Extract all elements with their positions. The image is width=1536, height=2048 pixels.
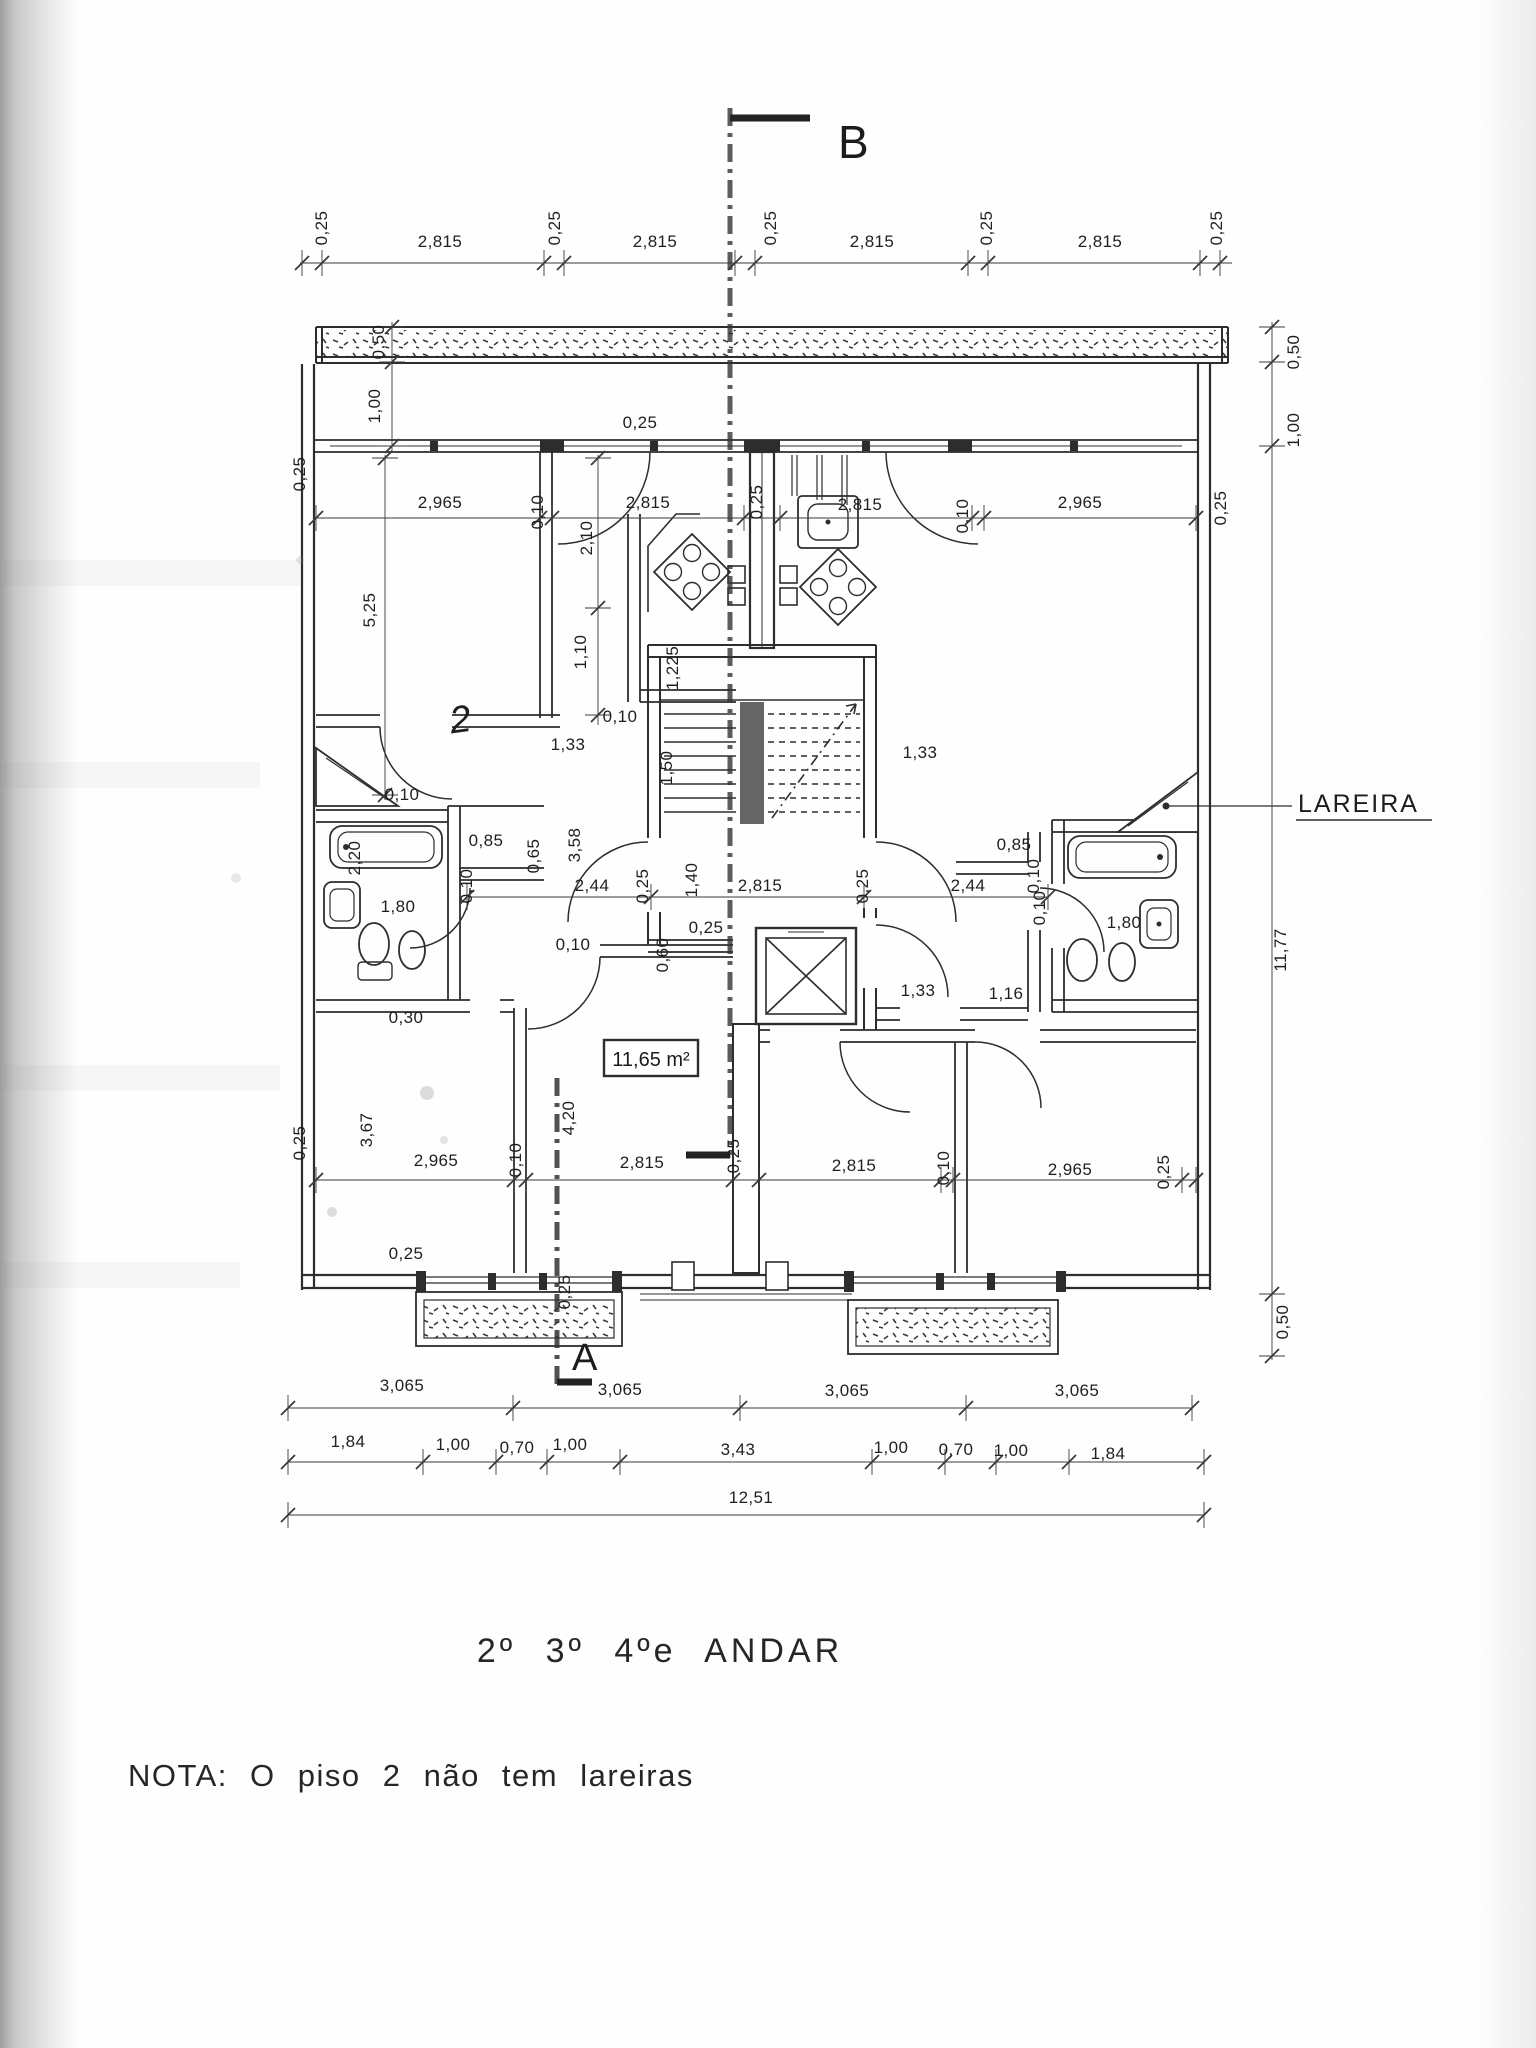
dimension-label: 1,33 <box>903 743 938 762</box>
terrace-band <box>316 327 1228 363</box>
dimension-label: 3,065 <box>825 1381 870 1400</box>
dimension-label: 0,65 <box>524 839 543 874</box>
stove-left <box>654 534 730 610</box>
dimension-label: 0,10 <box>556 935 591 954</box>
dimension-label: 3,065 <box>1055 1381 1100 1400</box>
dimension-label: 4,20 <box>559 1101 578 1136</box>
dimension-label: 0,25 <box>1211 491 1230 526</box>
toilet-right <box>1067 939 1097 981</box>
dimension-label: 0,10 <box>528 495 547 530</box>
toilet-left <box>359 923 389 965</box>
dimension-label: 0,10 <box>1030 891 1049 926</box>
dimension-label: 0,25 <box>853 869 872 904</box>
handwritten-mark: 2 <box>446 698 474 743</box>
dimension-label: 2,815 <box>738 876 783 895</box>
dimension-label: 2,815 <box>633 232 678 251</box>
dimension-label: 3,58 <box>565 828 584 863</box>
dimension-label: 2,44 <box>951 876 986 895</box>
dimension-label: 0,25 <box>555 1275 574 1310</box>
balcony-right <box>848 1300 1058 1354</box>
dimension-label: 0,25 <box>290 1126 309 1161</box>
dimension-label: 3,065 <box>380 1376 425 1395</box>
bidet-left <box>399 931 425 969</box>
dimension-label: 0,10 <box>603 707 638 726</box>
dimension-label: 12,51 <box>729 1488 774 1507</box>
dimension-label: 2,815 <box>620 1153 665 1172</box>
plan-linework <box>231 108 1432 1385</box>
dimension-label: 1,00 <box>874 1438 909 1457</box>
facade-window-wall <box>314 440 1198 452</box>
dimension-label: 1,84 <box>1091 1444 1126 1463</box>
dimension-label: 1,00 <box>1284 413 1303 448</box>
dimension-label: 1,84 <box>331 1432 366 1451</box>
dimension-label: 0,25 <box>977 211 996 246</box>
dimension-label: 0,10 <box>385 785 420 804</box>
dimension-label: 0,10 <box>457 869 476 904</box>
stair-well-rail <box>740 702 764 824</box>
dimension-label: 2,815 <box>832 1156 877 1175</box>
dimension-label: 1,80 <box>1107 913 1142 932</box>
kitchen-right <box>780 455 876 625</box>
dimension-label: 1,33 <box>551 735 586 754</box>
dimension-label: 0,25 <box>389 1244 424 1263</box>
drawing-note: NOTA: O piso 2 não tem lareiras <box>128 1758 694 1793</box>
elevator-shaft <box>756 928 856 1024</box>
dimension-label: 0,25 <box>747 485 766 520</box>
drawing-title: 2º 3º 4ºe ANDAR <box>477 1632 843 1670</box>
dimension-label: 1,225 <box>663 646 682 691</box>
dimension-label: 0,70 <box>500 1438 535 1457</box>
scanned-floor-plan-page: 0,252,8150,252,8150,252,8150,252,8150,25… <box>0 0 1536 2048</box>
dimension-label: 0,25 <box>761 211 780 246</box>
section-marker-b: B <box>838 116 869 168</box>
dimension-label: 1,33 <box>901 981 936 1000</box>
dimension-label: 1,00 <box>553 1435 588 1454</box>
dimension-label: 2,965 <box>418 493 463 512</box>
dimension-label: 0,85 <box>997 835 1032 854</box>
dimension-label: 2,815 <box>418 232 463 251</box>
dimension-label: 0,50 <box>1284 335 1303 370</box>
fireplace-label: LAREIRA <box>1298 790 1419 818</box>
dimension-label: 2,815 <box>1078 232 1123 251</box>
bidet-right <box>1109 943 1135 981</box>
dimension-label: 0,85 <box>469 831 504 850</box>
dimension-label: 0,25 <box>724 1139 743 1174</box>
floor-plan-drawing: 0,252,8150,252,8150,252,8150,252,8150,25… <box>0 0 1536 2048</box>
dimension-label: 1,50 <box>657 751 676 786</box>
dimension-label: 2,10 <box>577 521 596 556</box>
dimension-label: 2,965 <box>414 1151 459 1170</box>
dimension-label: 0,60 <box>653 938 672 973</box>
stove-right <box>800 549 876 625</box>
dimension-label: 0,30 <box>389 1008 424 1027</box>
dimension-label: 0,25 <box>623 413 658 432</box>
dimension-label: 0,70 <box>939 1440 974 1459</box>
room-area-label: 11,65 m² <box>612 1049 690 1071</box>
dimension-label: 3,43 <box>721 1440 756 1459</box>
dimension-label: 0,10 <box>1024 859 1043 894</box>
kitchen-left <box>648 514 745 612</box>
dimension-label: 2,20 <box>345 841 364 876</box>
dimension-label: 0,25 <box>312 211 331 246</box>
dimension-label: 3,065 <box>598 1380 643 1399</box>
fireplace-right <box>1118 772 1198 832</box>
dimension-label: 0,10 <box>953 499 972 534</box>
dimension-label: 2,965 <box>1058 493 1103 512</box>
dimension-label: 0,25 <box>290 457 309 492</box>
dimension-label: 0,50 <box>369 325 388 360</box>
dimension-label: 11,77 <box>1271 928 1290 971</box>
dimension-label: 2,815 <box>838 495 883 514</box>
dimension-label: 0,25 <box>1207 211 1226 246</box>
dimension-label: 2,965 <box>1048 1160 1093 1179</box>
dimension-label: 0,10 <box>506 1143 525 1178</box>
dimension-label: 0,50 <box>1273 1305 1292 1340</box>
dimension-label: 1,80 <box>381 897 416 916</box>
dimension-label: 1,00 <box>994 1441 1029 1460</box>
scan-smudges <box>231 556 448 1217</box>
dimension-label: 0,10 <box>934 1151 953 1186</box>
dimension-label: 2,815 <box>850 232 895 251</box>
dimension-label: 0,25 <box>689 918 724 937</box>
dimension-label: 0,25 <box>1154 1155 1173 1190</box>
dimension-label: 1,00 <box>365 389 384 424</box>
bathroom-right <box>1067 836 1178 981</box>
dimension-label: 1,10 <box>571 635 590 670</box>
dimension-label: 1,00 <box>436 1435 471 1454</box>
dimension-label: 1,16 <box>989 984 1024 1003</box>
dimension-label: 1,40 <box>682 863 701 898</box>
dimension-label: 2,815 <box>626 493 671 512</box>
section-marker-a: A <box>572 1337 598 1379</box>
interior-walls <box>316 452 1198 1273</box>
dimension-label: 0,25 <box>633 869 652 904</box>
dimension-label: 3,67 <box>357 1113 376 1148</box>
dimension-label: 0,25 <box>545 211 564 246</box>
dimension-label: 5,25 <box>360 593 379 628</box>
dimension-label: 2,44 <box>575 876 610 895</box>
staircase <box>660 700 864 824</box>
